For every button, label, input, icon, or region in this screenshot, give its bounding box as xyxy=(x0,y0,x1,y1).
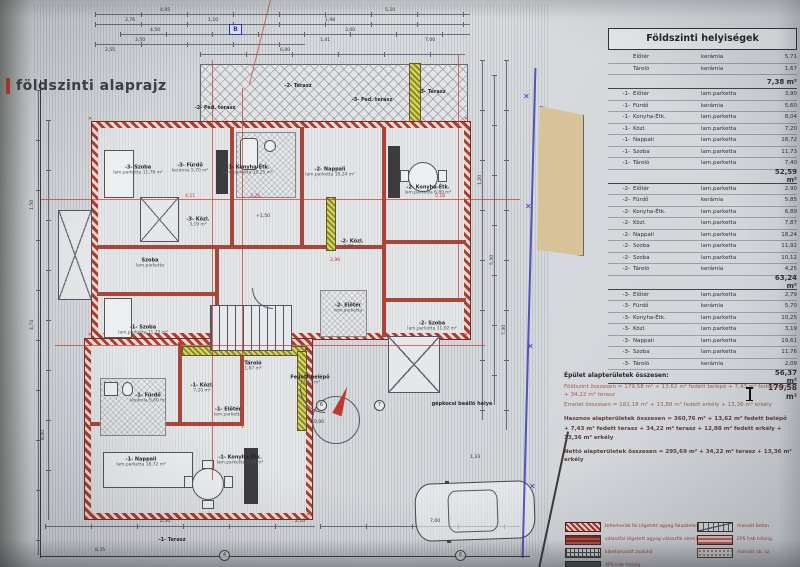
chair xyxy=(400,170,409,182)
dimension-number: 7,00 xyxy=(430,519,440,524)
room-label: -3- Szoba lam.parketta 11,76 m² xyxy=(113,165,162,176)
dim-line xyxy=(492,75,497,405)
table-row: -2- Szoba lam.parketta 11,92 xyxy=(608,241,797,253)
row-prefix: -2- xyxy=(608,186,633,192)
row-room-name: Előtér xyxy=(633,186,701,192)
room-info: 1,67 m² xyxy=(244,367,261,372)
room-info: lam.parketta xyxy=(136,264,164,269)
room-info: 3,19 m² xyxy=(186,223,209,228)
row-area: 3,90 xyxy=(763,91,797,97)
table-row: -1- Fürdő kerámia 5,60 xyxy=(608,101,797,113)
dimension-number: 7,00 xyxy=(425,38,435,43)
dimension-number: 4,95 xyxy=(160,8,170,13)
table-row: -3- Közl. lam.parketta 3,19 xyxy=(608,324,797,336)
legend-label: XPS hab hőszig. xyxy=(605,563,642,567)
chair xyxy=(438,170,447,182)
dimension-number: 5,30 xyxy=(490,255,495,265)
dimension-number: 5,18 xyxy=(435,194,445,199)
dimension-number: 6,00 xyxy=(280,48,290,53)
room-info: lam.parketta xyxy=(214,413,242,418)
room-info: lam.parketta 8,04 m² xyxy=(217,461,264,466)
partition-wall xyxy=(230,127,234,249)
red-corner-mark: ✕ xyxy=(464,116,468,122)
table-row: -3- Konyha-Étk. lam.parketta 10,25 xyxy=(608,313,797,325)
row-area: 7,20 xyxy=(763,126,797,132)
car-mirror xyxy=(445,481,449,484)
room-info: lam.parketta 11,73 m² xyxy=(118,331,167,336)
axis-bubble: 8 xyxy=(455,550,466,561)
red-corner-mark: ✕ xyxy=(306,512,310,518)
legend-left-column: teherhordó fal (égetett agyag falazóelem… xyxy=(565,520,695,567)
row-room-name: Konyha-Étk. xyxy=(633,315,701,321)
terrace-hatch-area xyxy=(200,64,468,126)
row-room-name: Tároló xyxy=(633,66,701,72)
row-material: lam.parketta xyxy=(701,338,763,344)
row-material: kerámia xyxy=(701,54,763,60)
row-prefix: -1- xyxy=(608,126,633,132)
row-area: 7,38 m² xyxy=(763,78,797,86)
summary-line: Földszint összesen = 179,58 m² + 13,62 m… xyxy=(564,383,798,399)
partition-wall xyxy=(97,245,234,249)
dimension-number: 4,11 xyxy=(185,194,195,199)
row-prefix: -2- xyxy=(608,197,633,203)
dimension-number: 3,00 xyxy=(345,28,355,33)
row-material: kerámia xyxy=(701,303,763,309)
table-row: 63,24 m² xyxy=(608,276,797,290)
room-label: -2- Fed. terasz xyxy=(195,105,236,111)
legend-swatch xyxy=(565,535,601,545)
row-area: 11,92 xyxy=(763,243,797,249)
row-prefix: -3- xyxy=(608,315,633,321)
table-row: 52,59 m² xyxy=(608,170,797,184)
car-roof xyxy=(447,489,498,533)
row-material: lam.parketta xyxy=(701,114,763,120)
row-material: lam.parketta xyxy=(701,186,763,192)
row-prefix: -2- xyxy=(608,266,633,272)
row-room-name: Fürdő xyxy=(633,303,701,309)
row-area: 5,60 xyxy=(763,103,797,109)
row-room-name: Közl. xyxy=(633,126,701,132)
row-material: lam.parketta xyxy=(701,126,763,132)
row-prefix: -3- xyxy=(608,292,633,298)
partition-wall xyxy=(97,292,217,296)
row-room-name: Nappali xyxy=(633,232,701,238)
legend-item: EPS hab hőszig. xyxy=(697,533,800,546)
red-annotation-line xyxy=(212,60,213,480)
red-annotation-line xyxy=(40,199,520,200)
chair xyxy=(202,500,214,509)
row-material: kerámia xyxy=(701,197,763,203)
row-room-name: Fürdő xyxy=(633,197,701,203)
row-area: 2,09 xyxy=(763,361,797,367)
row-area: 18,72 xyxy=(763,137,797,143)
row-prefix: -3- xyxy=(608,361,633,367)
row-prefix: -3- xyxy=(608,349,633,355)
axis-bubble: 7 xyxy=(374,400,385,411)
legend-swatch xyxy=(565,561,601,567)
row-prefix: -3- xyxy=(608,303,633,309)
row-area: 4,25 xyxy=(763,266,797,272)
neighbor-parcel xyxy=(536,106,584,256)
screen-photo-of-floorplan: ✕ ✕ ✕ ✕ ✕ ✕ ✕ ✕ ✕ ✕ földszinti alaprajz … xyxy=(0,0,800,567)
row-prefix: -2- xyxy=(608,243,633,249)
row-room-name: Szoba xyxy=(633,149,701,155)
sink xyxy=(264,140,276,152)
dimension-number: 2,90 xyxy=(330,258,340,263)
dining-table-round xyxy=(192,468,224,500)
row-material: lam.parketta xyxy=(701,149,763,155)
legend-label: teherhordó fal (égetett agyag falazóelem… xyxy=(605,524,702,529)
summary-line: + 7,43 m² fedett terasz + 34,22 m² teras… xyxy=(564,425,798,441)
rooms-table-rows: Előtér kerámia 5,71 Tároló kerámia 1,67 … xyxy=(608,52,797,399)
row-material: lam.parketta xyxy=(701,315,763,321)
table-row: -3- Szoba lam.parketta 11,76 xyxy=(608,347,797,359)
room-label: -2- Terasz xyxy=(284,83,311,89)
row-area: 7,40 xyxy=(763,160,797,166)
boundary-x-mark: ✕ xyxy=(525,202,532,211)
row-area: 18,24 xyxy=(763,232,797,238)
rooms-table-title: Földszinti helyiségek xyxy=(608,28,797,50)
row-material: lam.parketta xyxy=(701,209,763,215)
table-row: -1- Előtér lam.parketta 3,90 xyxy=(608,89,797,101)
dimension-number: 1,50 xyxy=(30,200,35,210)
dimension-number: 8,35 xyxy=(95,548,105,553)
row-material: kerámia xyxy=(701,361,763,367)
row-prefix: -2- xyxy=(608,220,633,226)
row-room-name: Szoba xyxy=(633,255,701,261)
red-corner-mark: ✕ xyxy=(88,332,92,338)
dim-line xyxy=(95,12,470,17)
row-room-name: Szoba xyxy=(633,243,701,249)
dimension-number: 1,98 xyxy=(325,18,335,23)
row-room-name: Előtér xyxy=(633,91,701,97)
row-room-name: Fürdő xyxy=(633,103,701,109)
room-label: -2- Előtér lam.parketta xyxy=(334,303,362,314)
row-area: 52,59 m² xyxy=(763,168,797,184)
legend-item: monolit vb. sz. xyxy=(697,546,800,559)
row-area: 1,67 xyxy=(763,66,797,72)
row-area: 8,04 xyxy=(763,114,797,120)
row-room-name: Közl. xyxy=(633,220,701,226)
row-area: 7,87 xyxy=(763,220,797,226)
row-prefix: -2- xyxy=(608,209,633,215)
room-label: -2- Szoba lam.parketta 11,92 m² xyxy=(407,321,456,332)
dimension-number: 8,00 xyxy=(41,430,46,440)
dim-line xyxy=(480,60,485,420)
table-row: -1- Közl. lam.parketta 7,20 xyxy=(608,124,797,136)
table-row: -3- Előtér lam.parketta 2,79 xyxy=(608,290,797,302)
text-cursor-ibeam[interactable] xyxy=(745,387,754,401)
ibeam-stem xyxy=(749,388,751,400)
summary-line: Hasznos alapterületek összesen = 360,76 … xyxy=(564,415,798,423)
row-area: 11,76 xyxy=(763,349,797,355)
room-label: -1- Előtér lam.parketta xyxy=(214,407,242,418)
table-row: Előtér kerámia 5,71 xyxy=(608,52,797,64)
table-row: -3- Fürdő kerámia 5,70 xyxy=(608,301,797,313)
partition-wall xyxy=(178,342,182,424)
room-label: -1- Közl. 7,20 m² xyxy=(190,383,213,394)
room-label: -1- Szoba lam.parketta 11,73 m² xyxy=(118,325,167,336)
room-label: Tároló 1,67 m² xyxy=(244,361,261,372)
room-label: -3- Fürdő kerámia 5,70 m² xyxy=(172,163,208,174)
boundary-x-mark: ✕ xyxy=(527,342,534,351)
partition-wall xyxy=(386,298,466,302)
row-area: 10,12 xyxy=(763,255,797,261)
dim-line xyxy=(200,52,465,57)
table-row: -2- Szoba lam.parketta 10,12 xyxy=(608,253,797,265)
red-annotation-line xyxy=(458,55,459,300)
ibeam-bottom xyxy=(746,400,753,402)
room-label: -2- Nappali lam.parketta 18,24 m² xyxy=(305,167,354,178)
dim-line xyxy=(120,32,470,37)
legend-swatch xyxy=(565,548,601,558)
kitchen-counter xyxy=(388,146,400,198)
dimension-number: 4,74 xyxy=(30,320,35,330)
table-row: -1- Konyha-Étk. lam.parketta 8,04 xyxy=(608,112,797,124)
room-label: -1- Terasz xyxy=(158,537,185,543)
room-info: 13,62 m² xyxy=(290,381,329,386)
table-row: -2- Előtér lam.parketta 2,90 xyxy=(608,184,797,196)
room-label: -3- Konyha-Étk. lam.parketta 10,25 m² xyxy=(223,165,272,176)
row-area: 19,61 xyxy=(763,338,797,344)
axis-bubble: 6 xyxy=(316,400,327,411)
boundary-line xyxy=(40,80,41,558)
row-material: lam.parketta xyxy=(701,232,763,238)
table-row: -1- Nappali lam.parketta 18,72 xyxy=(608,135,797,147)
dimension-number: 3,26 xyxy=(250,194,260,199)
room-name: -3- Terasz xyxy=(418,89,445,95)
room-info: lam.parketta 11,92 m² xyxy=(407,327,456,332)
room-info: 7,87 m² xyxy=(340,245,363,250)
dimension-number: 2,10 xyxy=(295,519,305,524)
dim-line xyxy=(95,42,305,47)
row-room-name: Tároló xyxy=(633,160,701,166)
room-name: -2- Terasz xyxy=(284,83,311,89)
row-area: 6,89 xyxy=(763,209,797,215)
dim-line xyxy=(95,22,470,27)
room-info: lam.parketta 10,25 m² xyxy=(223,171,272,176)
chair xyxy=(184,476,193,488)
partition-wall xyxy=(382,127,386,337)
row-room-name: Nappali xyxy=(633,338,701,344)
table-row: -3- Nappali lam.parketta 19,61 xyxy=(608,336,797,348)
room-name: gépkocsi beálló helye xyxy=(432,401,493,407)
plan-title: földszinti alaprajz xyxy=(6,78,167,94)
row-material: lam.parketta xyxy=(701,326,763,332)
row-room-name: Előtér xyxy=(633,54,701,60)
row-material: lam.parketta xyxy=(701,349,763,355)
row-prefix: -1- xyxy=(608,160,633,166)
dimension-number: 2,55 xyxy=(105,48,115,53)
zsaluko-wall xyxy=(327,198,335,250)
x-braced-shaft xyxy=(58,210,92,300)
row-prefix: -1- xyxy=(608,137,633,143)
dimension-number: 2,50 xyxy=(160,519,170,524)
row-material: lam.parketta xyxy=(701,220,763,226)
row-area: 2,79 xyxy=(763,292,797,298)
row-material: lam.parketta xyxy=(701,160,763,166)
axis-bubble: 4 xyxy=(219,550,230,561)
table-row: -2- Fürdő kerámia 5,85 xyxy=(608,195,797,207)
legend-label: EPS hab hőszig. xyxy=(737,537,773,542)
row-material: lam.parketta xyxy=(701,91,763,97)
x-braced-shaft xyxy=(140,197,179,242)
legend-item: kibetonozott zsalukő xyxy=(565,546,695,559)
room-label: -1- Konyha-Étk. lam.parketta 8,04 m² xyxy=(217,455,264,466)
row-room-name: Tároló xyxy=(633,266,701,272)
room-info: kerámia 5,60 m² xyxy=(130,399,166,404)
boundary-x-mark: ✕ xyxy=(523,92,530,101)
room-info: lam.parketta 18,72 m² xyxy=(116,463,165,468)
room-label: -3- Közl. 3,19 m² xyxy=(186,217,209,228)
section-marker-b: B xyxy=(229,24,242,35)
legend-label: válaszfal (égetett agyag válaszfal elem) xyxy=(605,537,697,542)
row-prefix: -2- xyxy=(608,255,633,261)
table-row: -2- Konyha-Étk. lam.parketta 6,89 xyxy=(608,207,797,219)
row-room-name: Előtér xyxy=(633,292,701,298)
row-area: 5,71 xyxy=(763,54,797,60)
legend-swatch xyxy=(697,522,733,532)
row-room-name: Szoba xyxy=(633,349,701,355)
partition-wall xyxy=(300,127,304,249)
room-label: gépkocsi beálló helye xyxy=(432,401,493,407)
car-mirror xyxy=(447,540,451,543)
legend-swatch xyxy=(697,535,733,545)
rooms-table: Földszinti helyiségek Előtér kerámia 5,7… xyxy=(608,28,797,399)
dimension-number: +1,50 xyxy=(256,214,270,219)
boundary-x-mark: ✕ xyxy=(529,482,536,491)
red-corner-mark: ✕ xyxy=(88,116,92,122)
room-label: -2- Közl. 7,87 m² xyxy=(340,239,363,250)
summary-heading: Épület alapterületek összesen: xyxy=(564,372,798,379)
row-area: 10,25 xyxy=(763,315,797,321)
dimension-number: 1,33 xyxy=(470,455,480,460)
ibeam-top xyxy=(746,387,753,389)
ceramic-floor xyxy=(320,290,367,337)
room-info: 7,20 m² xyxy=(190,389,213,394)
dimension-number: 5,10 xyxy=(385,8,395,13)
row-area: 11,73 xyxy=(763,149,797,155)
red-corner-mark: ✕ xyxy=(464,332,468,338)
dim-line xyxy=(45,524,315,529)
table-row: -2- Nappali lam.parketta 18,24 xyxy=(608,230,797,242)
room-label: -3- Fed. terasz xyxy=(352,97,393,103)
legend-item: XPS hab hőszig. xyxy=(565,559,695,567)
row-area: 5,85 xyxy=(763,197,797,203)
area-summary: Épület alapterületek összesen: Földszint… xyxy=(564,372,798,466)
car-topview xyxy=(414,480,536,542)
room-info: lam.parketta 11,76 m² xyxy=(113,171,162,176)
summary-line: Emelet összesen = 181,18 m² + 13,88 m² f… xyxy=(564,401,798,409)
row-room-name: Konyha-Étk. xyxy=(633,209,701,215)
dimension-number: 1,20 xyxy=(478,175,483,185)
legend-swatch xyxy=(565,522,601,532)
dimension-number: 7,30 xyxy=(502,325,507,335)
row-area: 5,70 xyxy=(763,303,797,309)
room-info: lam.parketta 18,24 m² xyxy=(305,173,354,178)
room-label: Fedett belépő 13,62 m² xyxy=(290,375,329,386)
room-label: -1- Fürdő kerámia 5,60 m² xyxy=(130,393,166,404)
red-corner-mark: ✕ xyxy=(88,512,92,518)
partition-wall xyxy=(386,240,466,244)
row-room-name: Konyha-Étk. xyxy=(633,114,701,120)
row-room-name: Tároló xyxy=(633,361,701,367)
row-room-name: Közl. xyxy=(633,326,701,332)
table-row: -2- Közl. lam.parketta 7,87 xyxy=(608,218,797,230)
row-prefix: -3- xyxy=(608,338,633,344)
legend-item: teherhordó fal (égetett agyag falazóelem… xyxy=(565,520,695,533)
room-name: -3- Fed. terasz xyxy=(352,97,393,103)
red-annotation-line xyxy=(55,345,485,346)
dimension-number: 1,41 xyxy=(320,38,330,43)
dimension-number: 4,50 xyxy=(150,28,160,33)
dim-line xyxy=(504,60,509,430)
table-row: 7,38 m² xyxy=(608,75,797,89)
room-info: lam.parketta xyxy=(334,309,362,314)
room-name: -2- Fed. terasz xyxy=(195,105,236,111)
legend-right-column: monolit beton EPS hab hőszig. monolit vb… xyxy=(697,520,800,559)
legend-item: válaszfal (égetett agyag válaszfal elem) xyxy=(565,533,695,546)
row-prefix: -1- xyxy=(608,91,633,97)
row-prefix: -1- xyxy=(608,114,633,120)
dimension-number: 3,50 xyxy=(135,38,145,43)
row-prefix: -1- xyxy=(608,103,633,109)
table-row: Tároló kerámia 1,67 xyxy=(608,64,797,76)
room-label: -3- Terasz xyxy=(418,89,445,95)
row-prefix: -2- xyxy=(608,232,633,238)
room-label: -1- Nappali lam.parketta 18,72 m² xyxy=(116,457,165,468)
room-info: kerámia 5,70 m² xyxy=(172,169,208,174)
dimension-number: 1,10 xyxy=(208,18,218,23)
row-material: kerámia xyxy=(701,66,763,72)
row-material: kerámia xyxy=(701,266,763,272)
chair xyxy=(224,476,233,488)
summary-lines: Földszint összesen = 179,58 m² + 13,62 m… xyxy=(564,383,798,464)
legend-item: monolit beton xyxy=(697,520,800,533)
summary-line: Nettó alapterületek összesen = 295,69 m²… xyxy=(564,448,798,464)
washing-machine xyxy=(104,382,118,396)
room-name: -1- Terasz xyxy=(158,537,185,543)
legend-label: monolit vb. sz. xyxy=(737,550,771,555)
legend-label: kibetonozott zsalukő xyxy=(605,550,653,555)
row-area: 2,90 xyxy=(763,186,797,192)
row-material: lam.parketta xyxy=(701,137,763,143)
red-annotation-line xyxy=(242,88,243,428)
row-area: 3,19 xyxy=(763,326,797,332)
row-material: kerámia xyxy=(701,103,763,109)
room-label: Szoba lam.parketta xyxy=(136,258,164,269)
row-material: lam.parketta xyxy=(701,243,763,249)
row-area: 63,24 m² xyxy=(763,274,797,290)
row-material: lam.parketta xyxy=(701,255,763,261)
dimension-number: ±0,00 xyxy=(310,420,324,425)
dim-line xyxy=(46,120,51,520)
row-material: lam.parketta xyxy=(701,292,763,298)
table-row: -1- Szoba lam.parketta 11,73 xyxy=(608,147,797,159)
row-room-name: Nappali xyxy=(633,137,701,143)
legend-swatch xyxy=(697,548,733,558)
dimension-number: 2,76 xyxy=(125,18,135,23)
legend-label: monolit beton xyxy=(737,524,769,529)
row-prefix: -1- xyxy=(608,149,633,155)
row-prefix: -3- xyxy=(608,326,633,332)
